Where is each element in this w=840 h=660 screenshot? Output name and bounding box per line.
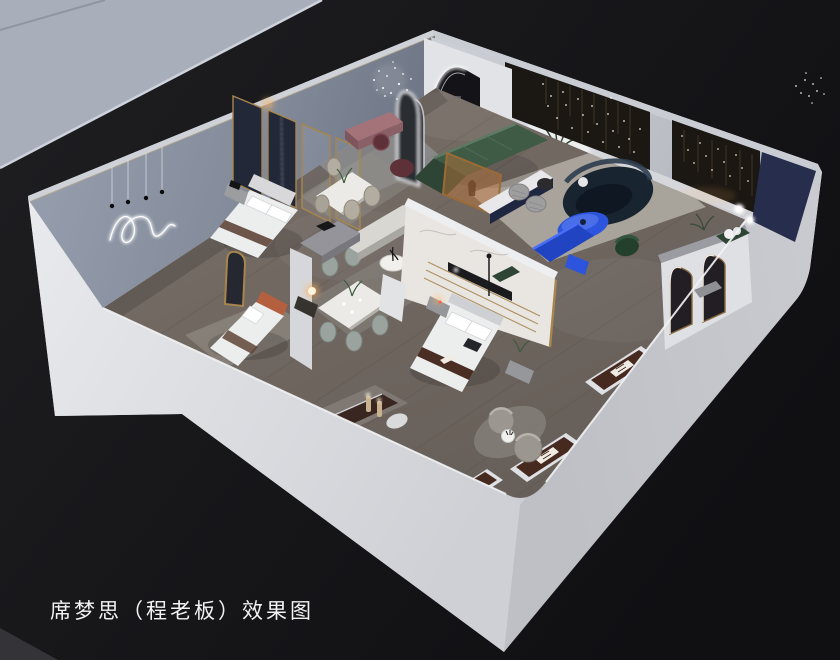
spotlight [454, 268, 458, 272]
wall-downlight [262, 98, 274, 110]
burgundy-side-table [373, 134, 389, 150]
gold-arch-mirror [225, 252, 245, 306]
dark-armchair [537, 178, 553, 190]
throw-pillow [578, 177, 588, 187]
maroon-ottoman [390, 159, 414, 177]
arch-mirror-1 [670, 267, 692, 334]
side-table [502, 430, 515, 443]
rendering-canvas: 席梦思（程老板）效果图 [0, 0, 840, 660]
caption: 席梦思（程老板）效果图 [50, 599, 314, 623]
vase-silhouette [468, 180, 476, 196]
globe-table-lamp [308, 287, 316, 295]
scene-svg: 席梦思（程老板）效果图 [0, 0, 840, 660]
